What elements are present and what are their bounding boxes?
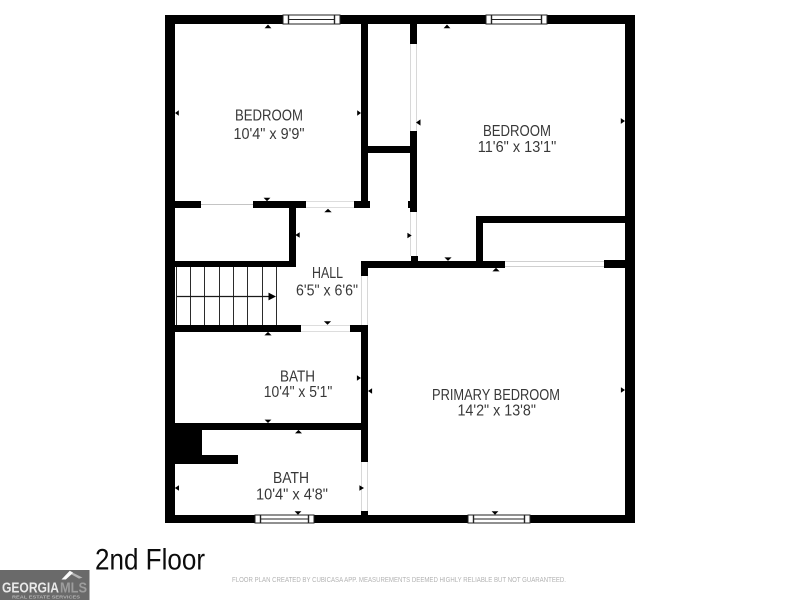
svg-text:BATH: BATH (280, 369, 315, 386)
svg-text:10'4" x 4'8": 10'4" x 4'8" (256, 487, 328, 504)
svg-text:BEDROOM: BEDROOM (235, 107, 303, 124)
svg-text:10'4" x 9'9": 10'4" x 9'9" (234, 126, 305, 143)
svg-text:10'4" x 5'1": 10'4" x 5'1" (264, 384, 333, 401)
svg-text:11'6" x 13'1": 11'6" x 13'1" (478, 139, 557, 156)
svg-text:BATH: BATH (273, 470, 309, 487)
svg-text:BEDROOM: BEDROOM (483, 123, 551, 140)
svg-text:PRIMARY BEDROOM: PRIMARY BEDROOM (432, 387, 560, 404)
svg-text:FLOOR PLAN CREATED BY CUBICASA: FLOOR PLAN CREATED BY CUBICASA APP. MEAS… (232, 577, 566, 584)
svg-text:HALL: HALL (312, 265, 343, 282)
svg-text:14'2" x 13'8": 14'2" x 13'8" (457, 403, 536, 420)
svg-text:6'5" x 6'6": 6'5" x 6'6" (296, 282, 358, 299)
svg-text:2nd Floor: 2nd Floor (95, 544, 205, 577)
svg-text:REAL ESTATE SERVICES: REAL ESTATE SERVICES (12, 594, 80, 599)
